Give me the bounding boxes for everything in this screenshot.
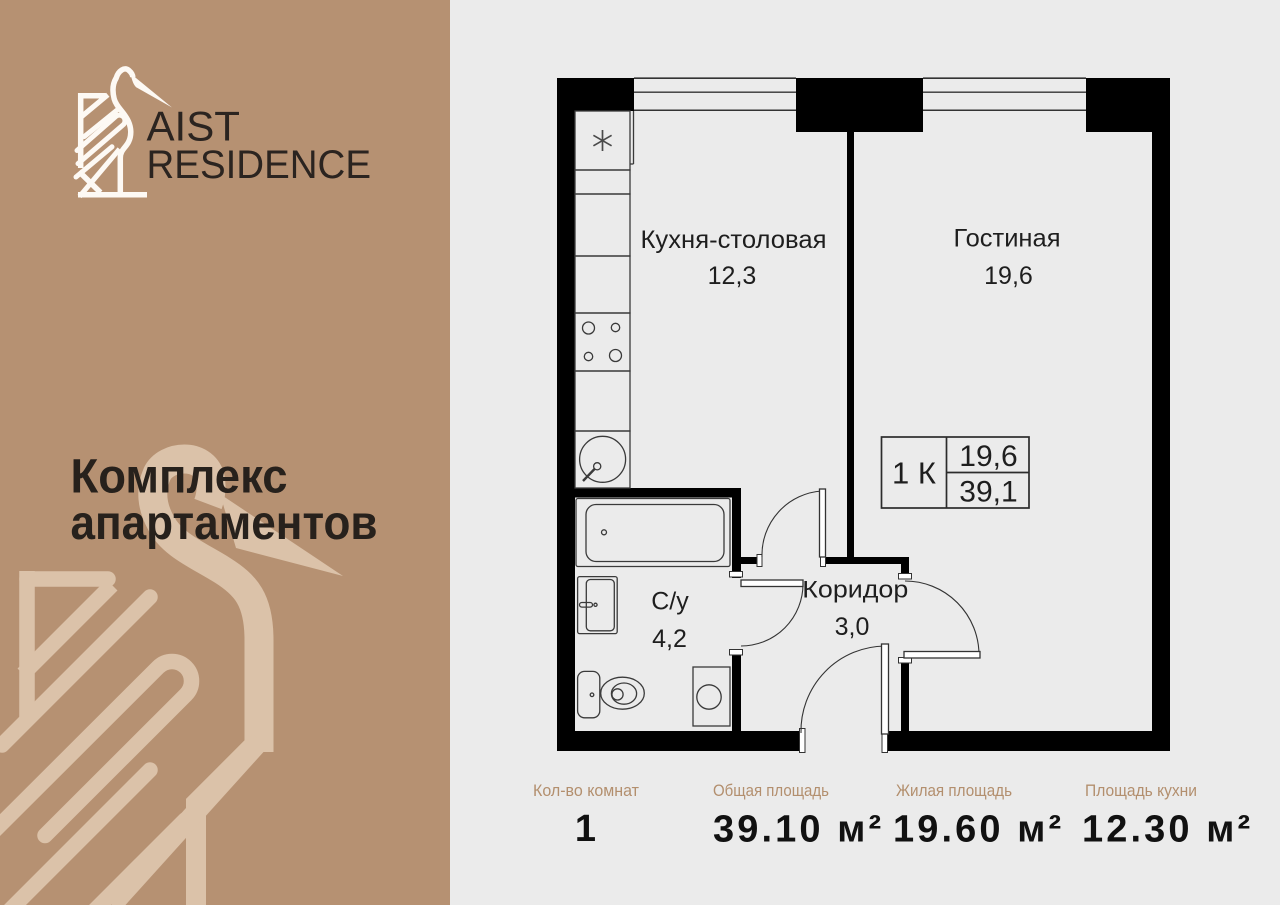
svg-text:4,2: 4,2 [652,625,687,653]
svg-text:39,1: 39,1 [959,476,1017,509]
svg-text:Кол-во комнат: Кол-во комнат [533,781,639,800]
svg-text:3,0: 3,0 [835,613,870,641]
svg-text:Общая площадь: Общая площадь [713,781,829,800]
svg-text:Комплекс: Комплекс [71,451,288,504]
svg-text:Жилая площадь: Жилая площадь [896,781,1012,800]
svg-text:19,6: 19,6 [959,440,1017,473]
svg-text:RESIDENCE: RESIDENCE [147,143,372,187]
svg-text:Площадь кухни: Площадь кухни [1085,781,1197,800]
svg-text:апартаментов: апартаментов [71,497,378,550]
svg-text:1: 1 [575,808,599,850]
svg-text:Коридор: Коридор [802,577,908,604]
svg-text:С/у: С/у [651,588,689,616]
svg-text:39.10 м²: 39.10 м² [713,809,884,851]
svg-text:Кухня-столовая: Кухня-столовая [641,226,827,254]
svg-text:Гостиная: Гостиная [954,225,1061,253]
svg-text:19,6: 19,6 [984,262,1033,290]
svg-text:1 К: 1 К [892,456,936,491]
svg-text:12,3: 12,3 [708,262,757,290]
svg-text:12.30 м²: 12.30 м² [1082,809,1253,851]
svg-text:19.60 м²: 19.60 м² [893,809,1064,851]
